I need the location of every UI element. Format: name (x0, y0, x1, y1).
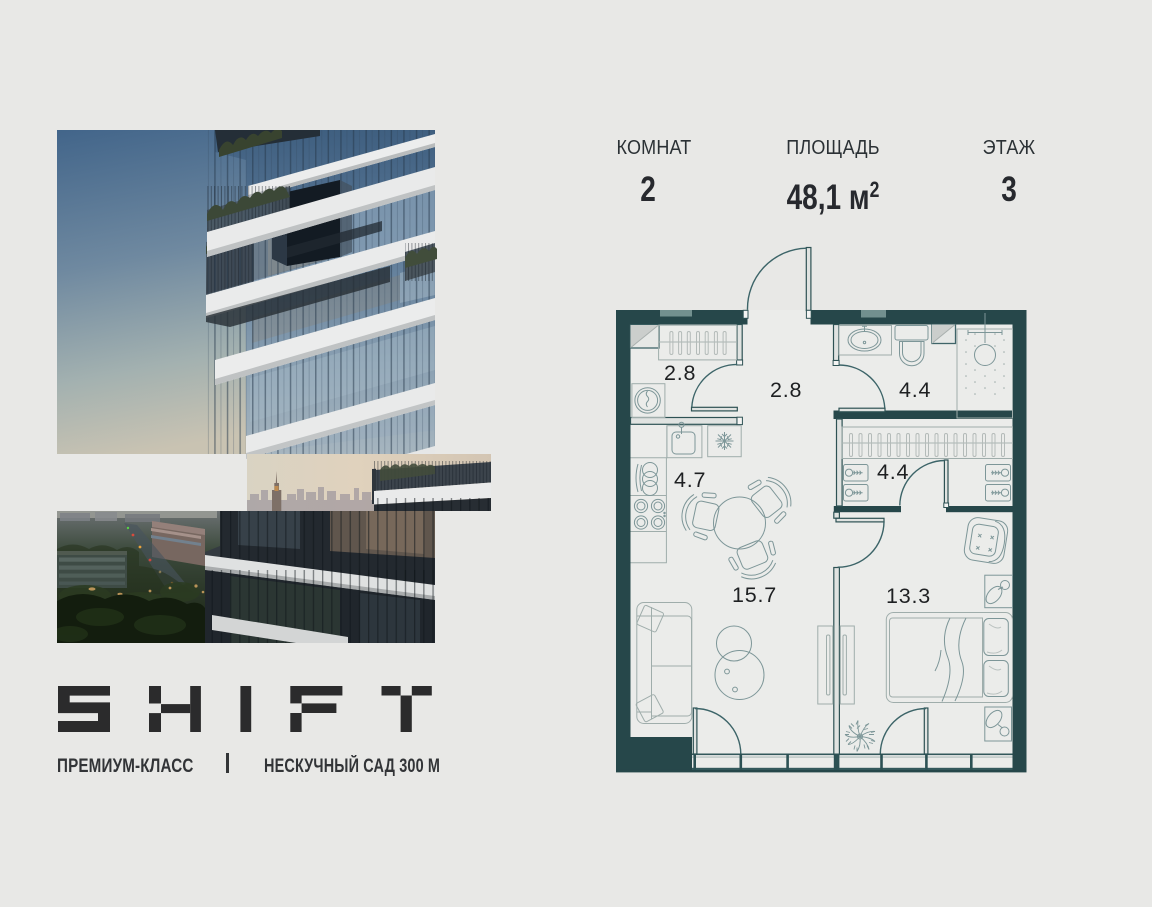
svg-text:13.3: 13.3 (886, 584, 931, 608)
svg-text:2.8: 2.8 (664, 361, 696, 385)
svg-text:4.7: 4.7 (674, 468, 706, 492)
svg-text:4.4: 4.4 (899, 378, 931, 402)
svg-text:15.7: 15.7 (732, 583, 777, 607)
svg-text:2.8: 2.8 (770, 378, 802, 402)
svg-text:4.4: 4.4 (877, 460, 909, 484)
